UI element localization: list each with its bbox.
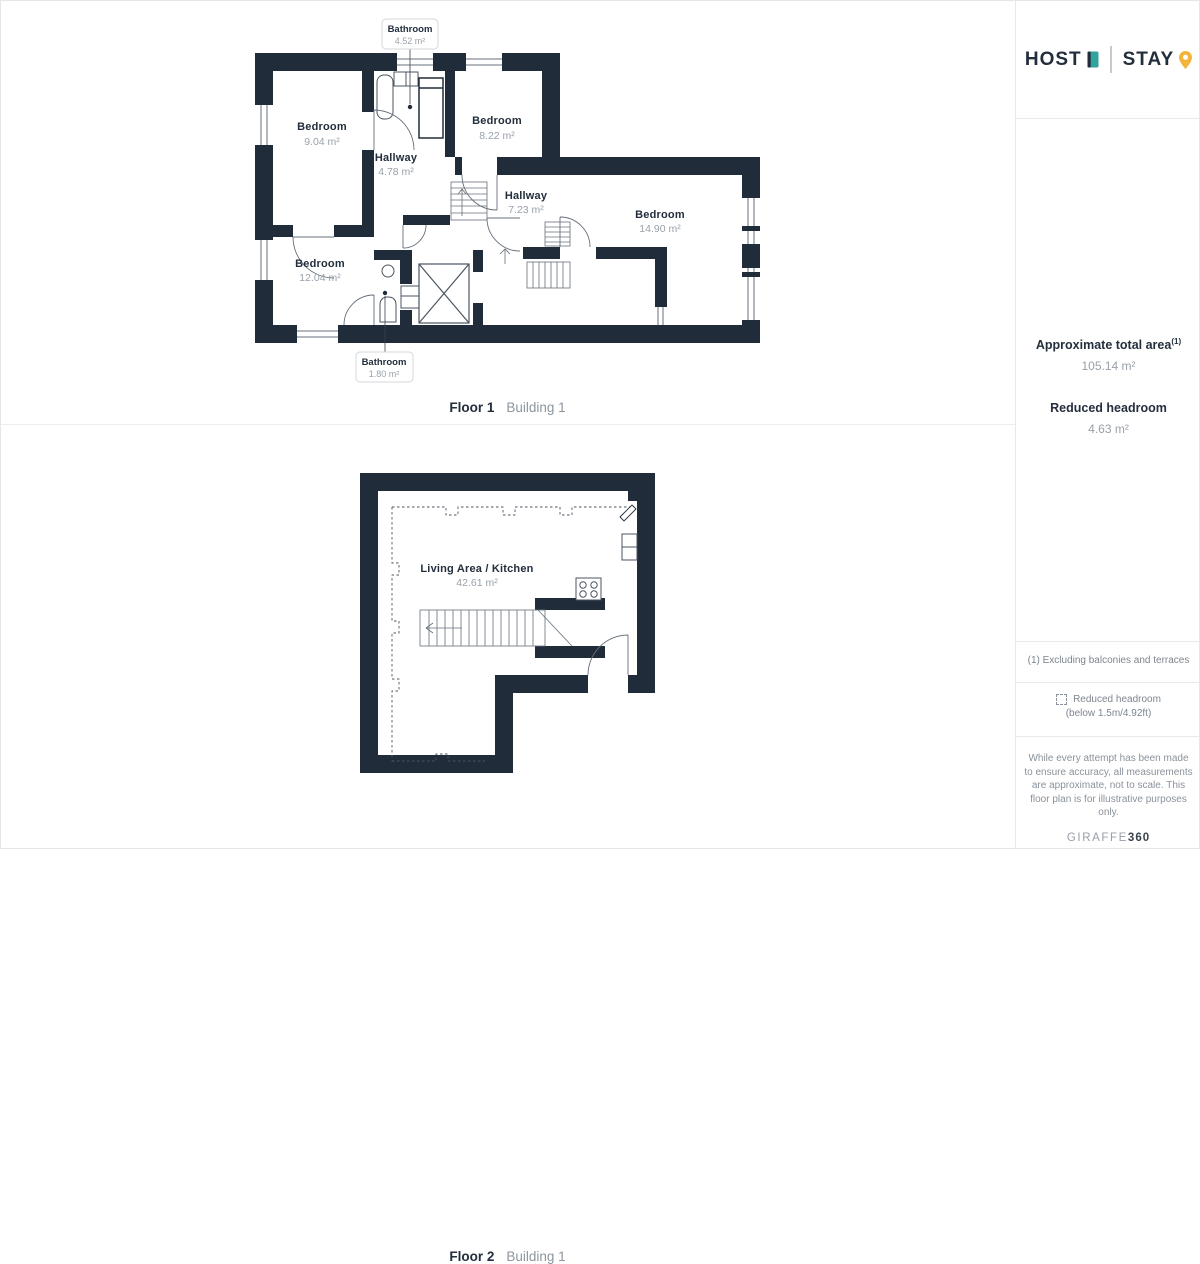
svg-text:Hallway: Hallway xyxy=(375,152,418,164)
svg-text:4.52 m²: 4.52 m² xyxy=(395,36,426,46)
reduced-headroom-legend-icon xyxy=(1056,694,1067,705)
floor-label: Floor 1 xyxy=(449,400,494,415)
logo-stay-text: STAY xyxy=(1123,49,1175,71)
wall-stub xyxy=(628,491,637,501)
total-area-label: Approximate total area(1) xyxy=(1016,337,1200,352)
svg-text:1.80 m²: 1.80 m² xyxy=(369,369,400,379)
reduced-headroom-label: Reduced headroom xyxy=(1016,401,1200,415)
reduced-headroom-block: Reduced headroom 4.63 m² xyxy=(1016,401,1200,436)
basin-icon xyxy=(382,265,394,277)
building-label: Building 1 xyxy=(506,1249,565,1264)
floor1-panel: Bathroom 4.52 m² Bathroom 1.80 m² Bedroo… xyxy=(0,0,1015,425)
sidebar-divider xyxy=(1016,682,1200,683)
door-icon xyxy=(1087,51,1099,68)
svg-text:Bedroom: Bedroom xyxy=(472,115,522,127)
svg-text:Bedroom: Bedroom xyxy=(635,209,685,221)
void-x-icon xyxy=(419,264,469,323)
disclaimer-block: While every attempt has been made to ens… xyxy=(1016,752,1200,844)
legend-subtitle: (below 1.5m/4.92ft) xyxy=(1016,708,1200,719)
sidebar-divider xyxy=(1016,118,1200,119)
sink-icon xyxy=(394,72,418,86)
svg-text:Bathroom: Bathroom xyxy=(362,357,407,368)
svg-text:Hallway: Hallway xyxy=(505,190,548,202)
floor2-caption: Floor 2Building 1 xyxy=(0,1249,1015,1264)
svg-text:Bathroom: Bathroom xyxy=(388,24,433,35)
footnote-text: (1) Excluding balconies and terraces xyxy=(1016,655,1200,666)
stair-wall-bottom xyxy=(535,646,605,658)
floor1-caption: Floor 1Building 1 xyxy=(0,400,1015,415)
floor1-plan: Bathroom 4.52 m² Bathroom 1.80 m² Bedroo… xyxy=(0,0,1015,424)
legend-title: Reduced headroom xyxy=(1073,694,1161,705)
stove-icon xyxy=(576,578,601,600)
toilet-icon xyxy=(380,297,396,322)
logo-host-text: HOST xyxy=(1025,49,1082,71)
total-area-value: 105.14 m² xyxy=(1016,359,1200,373)
svg-text:7.23 m²: 7.23 m² xyxy=(508,204,544,216)
door-opening xyxy=(588,675,628,693)
shower-icon xyxy=(419,78,443,138)
disclaimer-text: While every attempt has been made to ens… xyxy=(1024,752,1194,820)
svg-text:8.22 m²: 8.22 m² xyxy=(479,130,515,142)
floorplan-main-area: Bathroom 4.52 m² Bathroom 1.80 m² Bedroo… xyxy=(0,0,1015,849)
host-stay-logo: HOST STAY xyxy=(1016,46,1200,73)
credit-suffix: 360 xyxy=(1128,832,1150,844)
svg-text:Bedroom: Bedroom xyxy=(295,258,345,270)
sidebar-divider xyxy=(1016,736,1200,737)
svg-text:9.04 m²: 9.04 m² xyxy=(304,136,340,148)
floor2-plan: Living Area / Kitchen 42.61 m² xyxy=(0,425,1015,849)
bathtub-icon xyxy=(377,75,393,119)
svg-text:14.90 m²: 14.90 m² xyxy=(639,223,681,235)
svg-text:42.61 m²: 42.61 m² xyxy=(456,577,498,589)
appliance-icon xyxy=(401,286,421,308)
svg-text:Living Area / Kitchen: Living Area / Kitchen xyxy=(420,563,533,575)
sidebar-divider xyxy=(1016,641,1200,642)
svg-text:12.04 m²: 12.04 m² xyxy=(299,272,341,284)
info-sidebar: HOST STAY Approximate total area(1) 105.… xyxy=(1015,0,1200,849)
credit-brand: GIRAFFE xyxy=(1067,832,1128,844)
floor2-panel: Living Area / Kitchen 42.61 m² Floor 2Bu… xyxy=(0,425,1015,849)
total-area-block: Approximate total area(1) 105.14 m² xyxy=(1016,337,1200,373)
logo-divider xyxy=(1110,46,1112,73)
footnote-block: (1) Excluding balconies and terraces xyxy=(1016,655,1200,666)
svg-text:Bedroom: Bedroom xyxy=(297,121,347,133)
legend-block: Reduced headroom (below 1.5m/4.92ft) xyxy=(1016,694,1200,719)
floor-label: Floor 2 xyxy=(449,1249,494,1264)
appliance-icon xyxy=(622,534,637,560)
svg-text:4.78 m²: 4.78 m² xyxy=(378,166,414,178)
reduced-headroom-value: 4.63 m² xyxy=(1016,422,1200,436)
giraffe360-logo: GIRAFFE360 xyxy=(1016,832,1200,844)
map-pin-icon xyxy=(1179,51,1192,69)
footnote-marker: (1) xyxy=(1171,337,1181,346)
building-label: Building 1 xyxy=(506,400,565,415)
